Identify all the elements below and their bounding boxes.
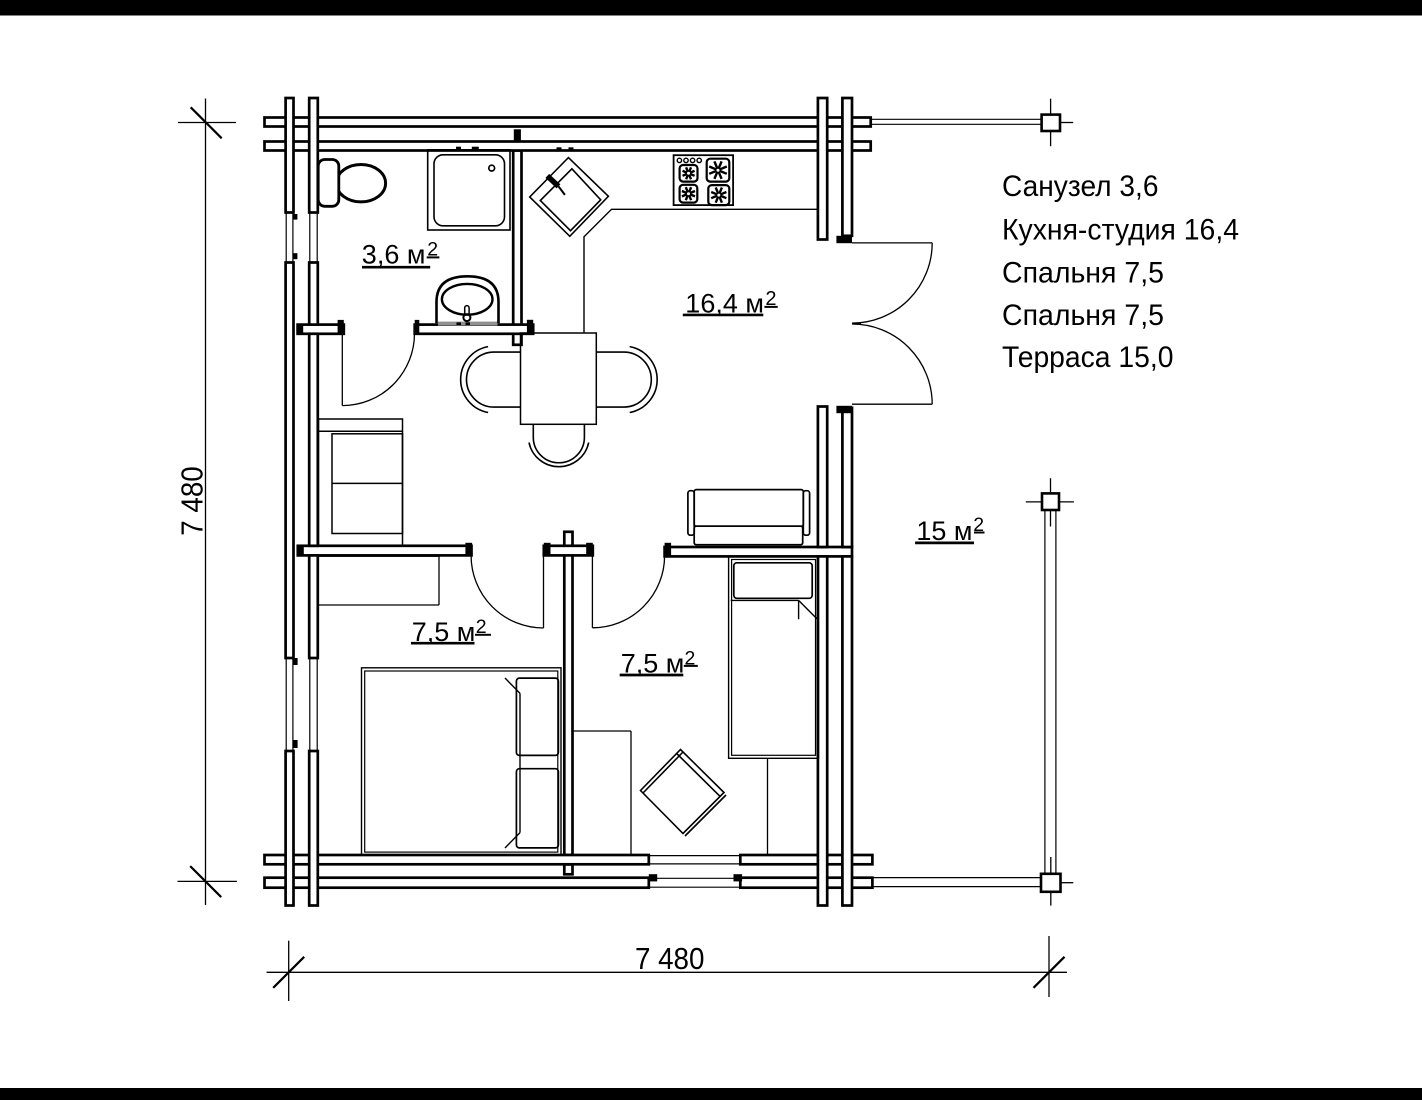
svg-text:7 480: 7 480 (175, 466, 210, 536)
svg-text:3,6 м: 3,6 м (362, 240, 426, 270)
svg-text:Санузел 3,6: Санузел 3,6 (1002, 170, 1159, 203)
svg-text:7 480: 7 480 (635, 941, 705, 976)
svg-text:Спальня 7,5: Спальня 7,5 (1002, 299, 1164, 332)
svg-text:Кухня-студия 16,4: Кухня-студия 16,4 (1002, 214, 1239, 247)
svg-text:Терраса 15,0: Терраса 15,0 (1002, 341, 1174, 374)
svg-text:15 м: 15 м (916, 516, 972, 546)
svg-text:Спальня 7,5: Спальня 7,5 (1002, 257, 1164, 290)
